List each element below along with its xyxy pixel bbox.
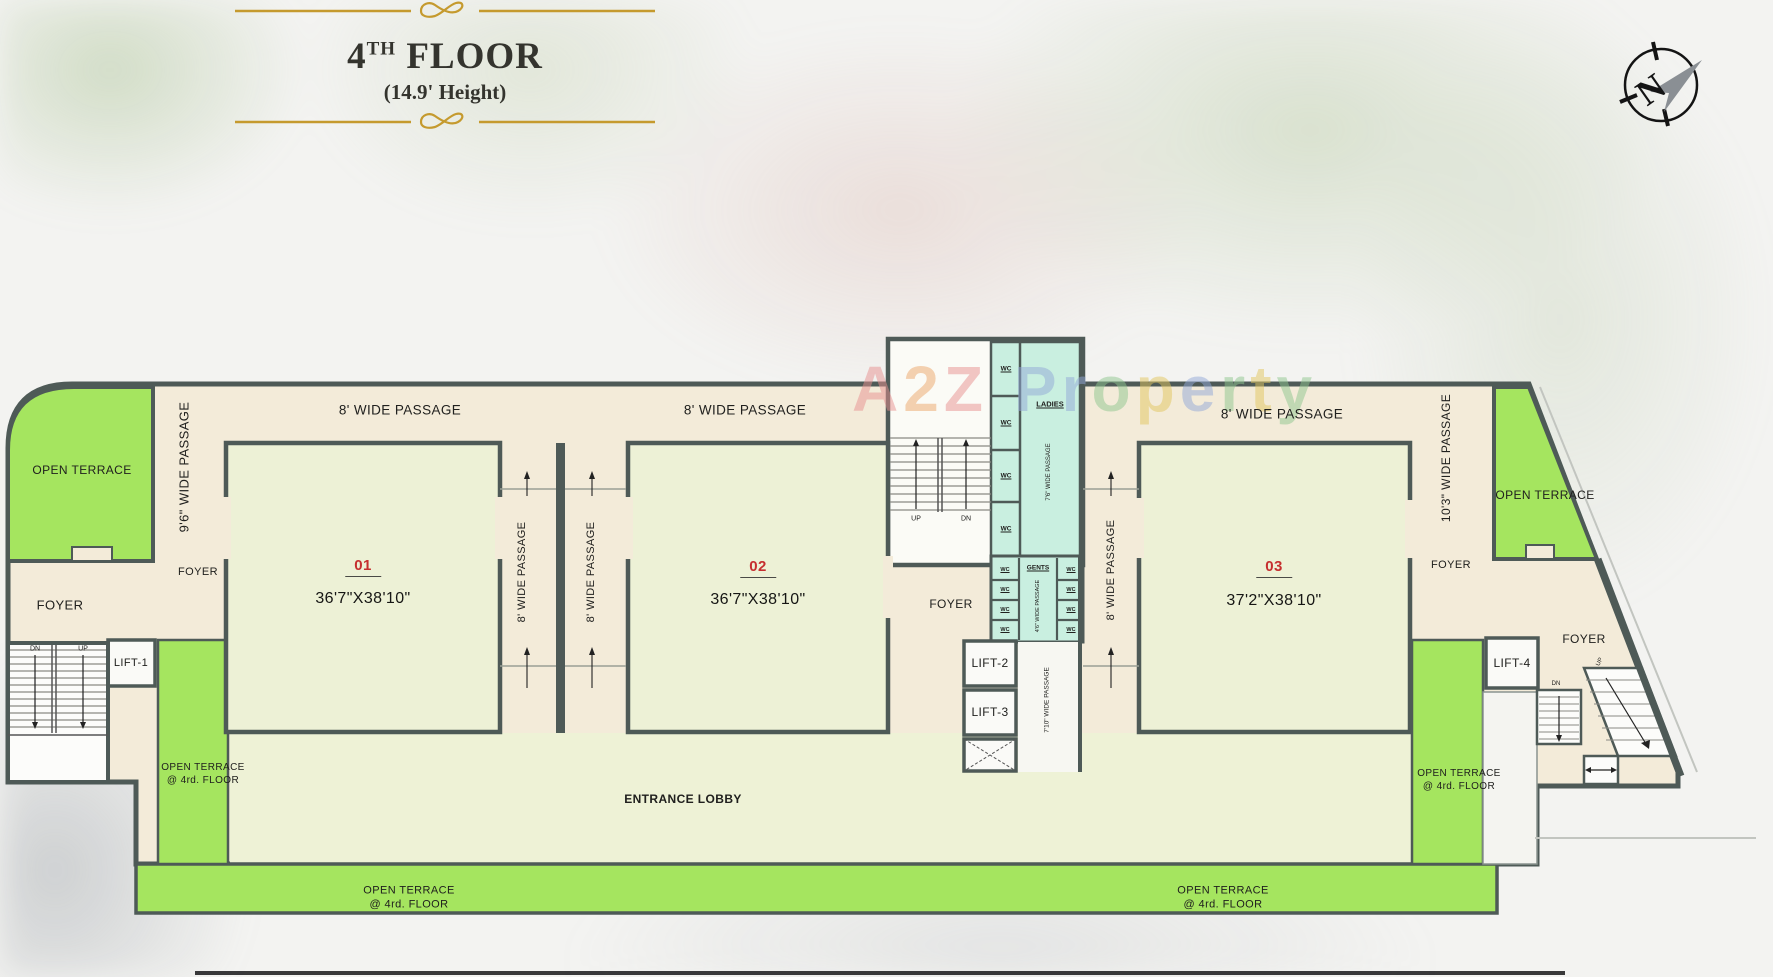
wc-label: WC — [1066, 587, 1075, 593]
top-passage-3-label: 8' WIDE PASSAGE — [1221, 407, 1343, 422]
lift-1-label: LIFT-1 — [114, 657, 148, 669]
unit-03-number: 03 — [1256, 558, 1292, 578]
unit-03-room — [1139, 443, 1410, 732]
floor-height-note: (14.9' Height) — [225, 80, 665, 105]
floor-ordinal: TH — [367, 39, 396, 60]
unit-01-number: 01 — [345, 557, 381, 577]
open-terrace-right-label: OPEN TERRACE — [1495, 488, 1594, 502]
terrace-strip-left — [158, 640, 228, 864]
wc-label: WC — [1066, 567, 1075, 573]
terrace-4th-label: OPEN TERRACE @ 4rd. FLOOR — [329, 884, 489, 913]
lift-2-label: LIFT-2 — [971, 656, 1008, 670]
wc-label: WC — [1000, 627, 1009, 633]
terrace-strip-right — [1412, 640, 1483, 864]
entrance-lobby-label: ENTRANCE LOBBY — [624, 792, 742, 806]
terrace-4th-line1: OPEN TERRACE — [143, 761, 263, 774]
open-terrace-left-label: OPEN TERRACE — [32, 463, 131, 477]
stair-dn-label: DN — [1552, 681, 1561, 687]
foyer-label: FOYER — [1562, 632, 1605, 646]
terrace-door-right — [1526, 545, 1554, 559]
terrace-4th-label: OPEN TERRACE @ 4rd. FLOOR — [1143, 884, 1303, 913]
lift-3-label: LIFT-3 — [971, 705, 1008, 719]
foyer-label: FOYER — [37, 598, 84, 613]
lift-passage-label: 7'10" WIDE PASSAGE — [1044, 667, 1051, 733]
terrace-4th-line1: OPEN TERRACE — [1399, 767, 1519, 780]
floor-number: 4 — [347, 36, 367, 77]
passage-10-3-label: 10'3" WIDE PASSAGE — [1439, 394, 1453, 522]
entrance-lobby-area — [230, 733, 1412, 864]
wc-label: WC — [1001, 366, 1012, 373]
gents-label: GENTS — [1027, 565, 1049, 572]
passage-divider-wall — [556, 443, 565, 733]
unit-02-room — [628, 443, 888, 732]
wc-label: WC — [1066, 607, 1075, 613]
floor-word: FLOOR — [406, 36, 543, 77]
stair-dn-label: DN — [30, 646, 40, 653]
terrace-4th-label: OPEN TERRACE @ 4rd. FLOOR — [143, 761, 263, 787]
vertical-passage-1-label: 8' WIDE PASSAGE — [516, 522, 528, 623]
top-passage-2-label: 8' WIDE PASSAGE — [684, 403, 806, 418]
unit-02-dimensions: 36'7"X38'10" — [710, 591, 805, 609]
terrace-4th-line1: OPEN TERRACE — [1143, 884, 1303, 898]
ladies-passage-label: 7'6" WIDE PASSAGE — [1046, 443, 1052, 500]
ladies-label: LADIES — [1036, 400, 1064, 409]
terrace-4th-line2: @ 4rd. FLOOR — [329, 898, 489, 912]
gold-ornament-top — [235, 0, 655, 22]
wc-label: WC — [1000, 607, 1009, 613]
unit-01-dimensions: 36'7"X38'10" — [315, 590, 410, 608]
stair-up-label: UP — [911, 516, 921, 523]
terrace-4th-line1: OPEN TERRACE — [329, 884, 489, 898]
stair-dn-label: DN — [961, 516, 971, 523]
wc-label: WC — [1066, 627, 1075, 633]
gents-passage-label: 4'6" WIDE PASSAGE — [1035, 580, 1041, 632]
vertical-passage-3-label: 8' WIDE PASSAGE — [1105, 520, 1117, 621]
foyer-label: FOYER — [1431, 559, 1471, 571]
page-title: 4TH FLOOR — [225, 35, 665, 78]
terrace-door-left — [72, 547, 112, 561]
unit-01-room — [226, 443, 500, 732]
wc-label: WC — [1000, 587, 1009, 593]
bottom-edge-line — [195, 971, 1565, 975]
wc-label: WC — [1000, 567, 1009, 573]
floor-title-block: 4TH FLOOR (14.9' Height) — [225, 0, 665, 138]
foyer-label: FOYER — [929, 597, 972, 611]
top-passage-1-label: 8' WIDE PASSAGE — [339, 403, 461, 418]
unit-03-dimensions: 37'2"X38'10" — [1226, 592, 1321, 610]
wc-label: WC — [1001, 473, 1012, 480]
vertical-passage-2-label: 8' WIDE PASSAGE — [585, 522, 597, 623]
stair-up-label: UP — [78, 646, 88, 653]
foyer-label: FOYER — [178, 566, 218, 578]
terrace-4th-line2: @ 4rd. FLOOR — [1399, 780, 1519, 793]
compass-icon: N — [1620, 42, 1702, 126]
open-terrace-right-area — [1494, 387, 1597, 559]
passage-9-6-label: 9'6" WIDE PASSAGE — [177, 402, 192, 533]
wc-label: WC — [1001, 526, 1012, 533]
terrace-4th-line2: @ 4rd. FLOOR — [143, 774, 263, 787]
wc-label: WC — [1001, 420, 1012, 427]
terrace-4th-label: OPEN TERRACE @ 4rd. FLOOR — [1399, 767, 1519, 793]
lift-4-label: LIFT-4 — [1493, 656, 1530, 670]
unit-02-number: 02 — [740, 558, 776, 578]
terrace-4th-line2: @ 4rd. FLOOR — [1143, 898, 1303, 912]
gold-ornament-bottom — [235, 111, 655, 133]
